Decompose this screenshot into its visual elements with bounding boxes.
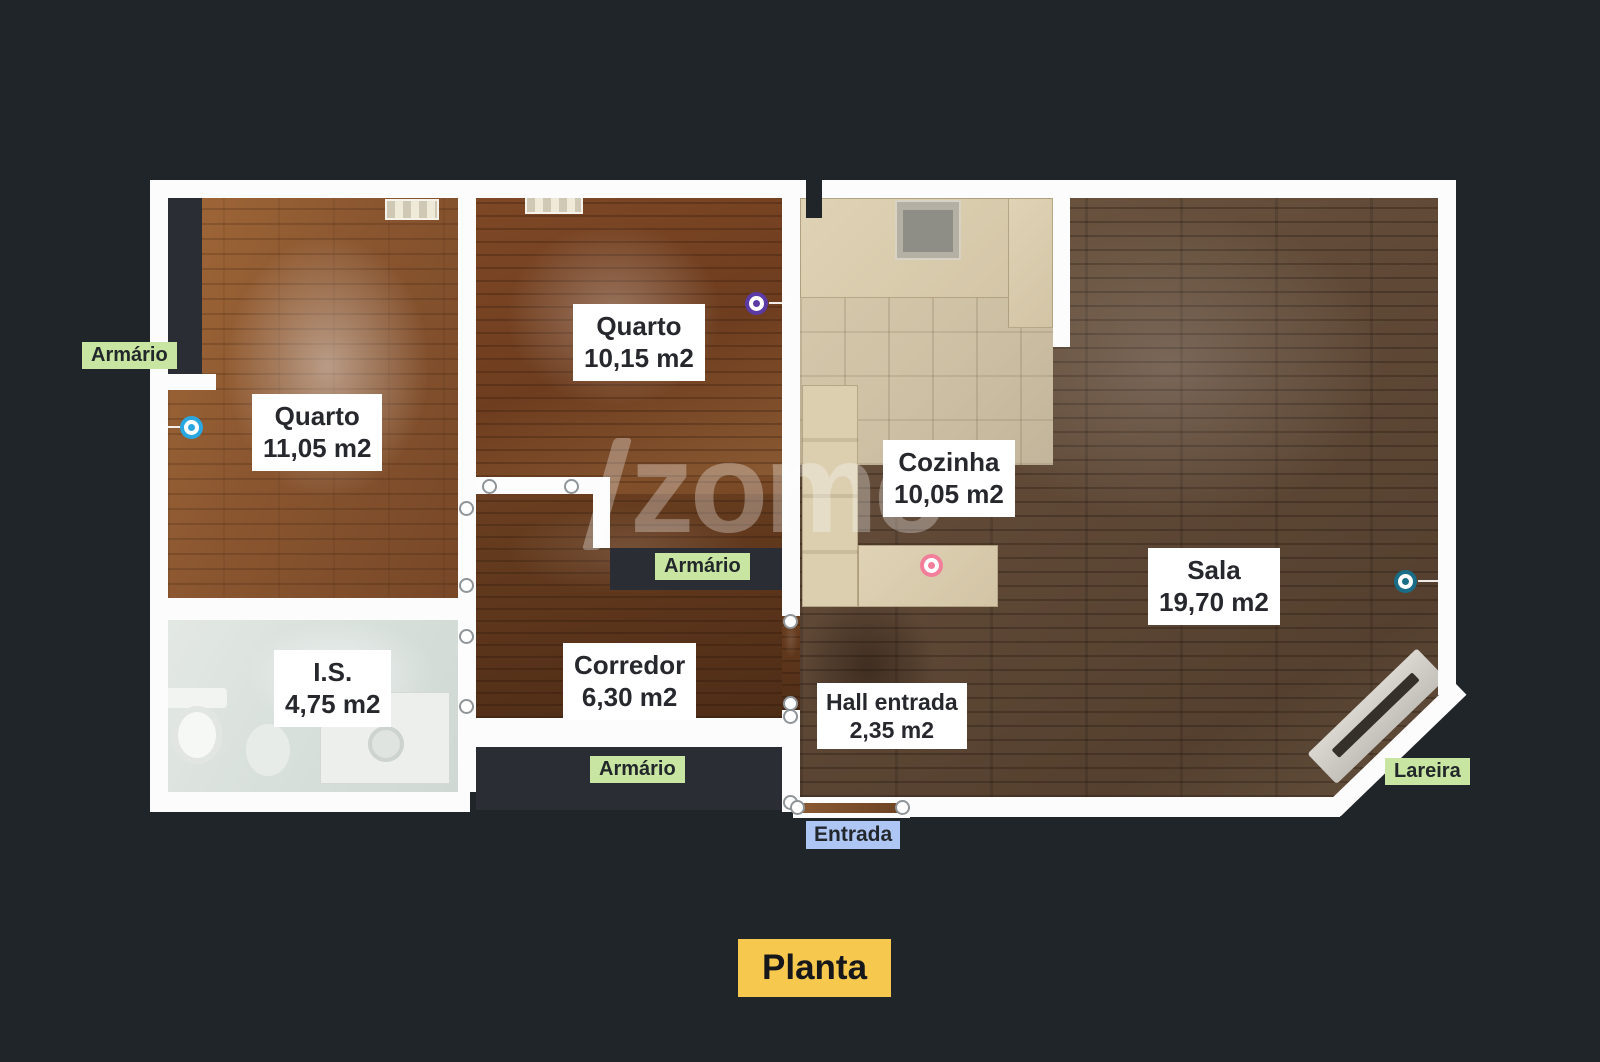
camera-marker-quarto2[interactable] (745, 292, 768, 315)
room-label-sala: Sala 19,70 m2 (1148, 548, 1280, 625)
room-name: Quarto (584, 311, 694, 343)
room-area: 6,30 m2 (574, 682, 685, 714)
door-handle (564, 479, 579, 494)
wall-left (150, 180, 168, 812)
tag-entrada: Entrada (806, 821, 900, 849)
wall-right (1438, 180, 1456, 695)
door-handle (790, 800, 805, 815)
plan-title: Planta (738, 939, 891, 997)
room-label-hall: Hall entrada 2,35 m2 (817, 683, 967, 749)
bidet (246, 724, 290, 776)
wall-sala-bottom (905, 797, 1340, 817)
room-name: I.S. (285, 657, 380, 689)
room-area: 11,05 m2 (263, 433, 371, 465)
room-area: 10,05 m2 (894, 479, 1004, 511)
entrada-threshold (800, 803, 900, 813)
door-handle (783, 614, 798, 629)
room-area: 2,35 m2 (826, 716, 958, 744)
wall-closet-step (168, 374, 216, 390)
tag-lareira: Lareira (1385, 758, 1470, 785)
tag-armario-topleft: Armário (82, 342, 177, 369)
door-handle (459, 501, 474, 516)
tag-armario-bottom: Armário (590, 756, 685, 783)
room-label-corredor: Corredor 6,30 m2 (563, 643, 696, 720)
radiator-quarto1 (385, 199, 439, 220)
door-handle (783, 709, 798, 724)
room-area: 10,15 m2 (584, 343, 694, 375)
room-label-is: I.S. 4,75 m2 (274, 650, 391, 727)
wall-corridor-bottom (476, 718, 782, 747)
room-area: 4,75 m2 (285, 689, 380, 721)
room-label-quarto2: Quarto 10,15 m2 (573, 304, 705, 381)
room-name: Quarto (263, 401, 371, 433)
toilet-tank (165, 688, 227, 708)
kitchen-sink-basin (903, 210, 953, 252)
room-name: Corredor (574, 650, 685, 682)
wall-top (150, 180, 1456, 198)
camera-marker-sala[interactable] (1394, 570, 1417, 593)
wall-bottom-left (150, 792, 470, 812)
marker-leader-line (1418, 580, 1440, 582)
wall-kitchen-sala (1053, 198, 1070, 347)
wall-bathroom-top (150, 598, 476, 620)
bathroom-lamp (368, 726, 404, 762)
room-area: 19,70 m2 (1159, 587, 1269, 619)
room-label-cozinha: Cozinha 10,05 m2 (883, 440, 1015, 517)
room-name: Hall entrada (826, 688, 958, 716)
door-handle (459, 578, 474, 593)
top-wall-notch (806, 180, 822, 218)
door-handle (482, 479, 497, 494)
room-name: Cozinha (894, 447, 1004, 479)
door-handle (459, 629, 474, 644)
door-handle (459, 699, 474, 714)
room-label-quarto1: Quarto 11,05 m2 (252, 394, 382, 471)
camera-marker-quarto1[interactable] (180, 416, 203, 439)
tag-armario-middle: Armário (655, 553, 750, 580)
room-name: Sala (1159, 555, 1269, 587)
toilet-bowl (172, 706, 222, 764)
camera-marker-cozinha[interactable] (920, 554, 943, 577)
marker-leader-line (769, 302, 785, 304)
kitchen-cabinet-right (1008, 198, 1053, 328)
door-handle (895, 800, 910, 815)
